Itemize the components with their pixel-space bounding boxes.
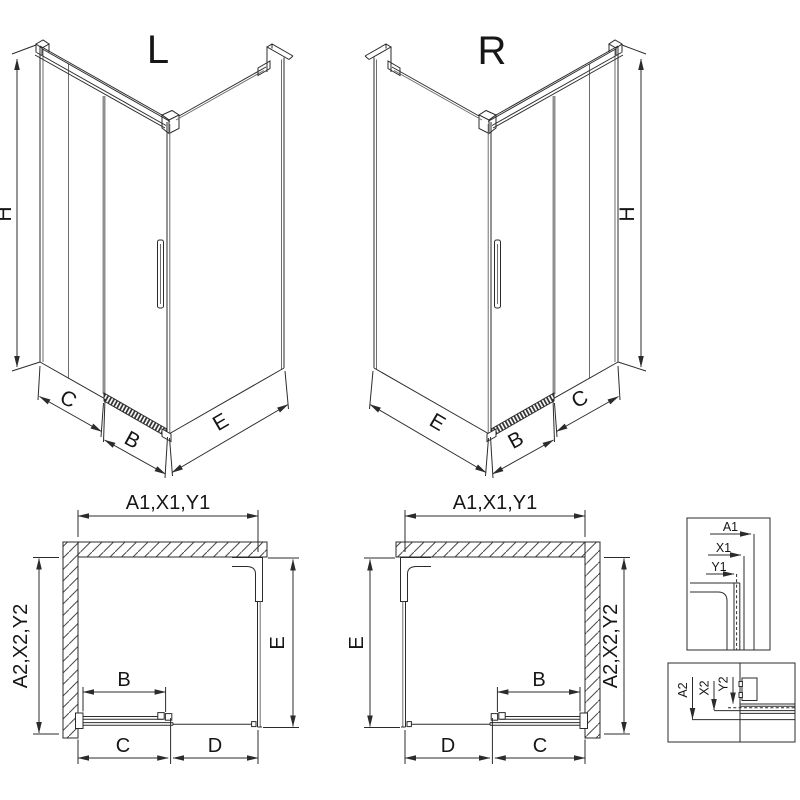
variant-label-left: L [147, 28, 169, 72]
wall-hatch-side-right-plan [585, 542, 600, 738]
plan-right-dim-a2x2y2: A2,X2,Y2 [600, 604, 622, 689]
dim-label-h-left: H [0, 206, 16, 221]
technical-drawing-page: L H C B E R H C B E A1,X1,Y1 A2,X2,Y2 E … [0, 0, 800, 800]
dim-label-e-right: E [425, 409, 449, 436]
detail-dim-a1: A1 [723, 520, 738, 534]
plan-right-dim-c: C [533, 735, 547, 757]
iso-view-left: L H C B E [0, 28, 293, 478]
wall-hatch-side-left-plan [63, 542, 78, 738]
detail-dim-x1: X1 [716, 541, 731, 555]
detail-dim-y2: Y2 [717, 676, 731, 691]
detail-dim-x2: X2 [698, 680, 712, 695]
plan-right-dim-a1x1y1: A1,X1,Y1 [453, 492, 538, 514]
iso-view-right: R H C B E [365, 29, 646, 478]
detail-dim-a2: A2 [676, 682, 690, 697]
plan-left-dim-c: C [116, 735, 130, 757]
wall-hatch-top-left-plan [63, 542, 267, 557]
dim-label-b-right: B [504, 427, 527, 454]
dim-label-h-right: H [616, 206, 639, 221]
dim-label-c-right: C [568, 386, 592, 413]
plan-view-left: A1,X1,Y1 A2,X2,Y2 E B C D [10, 492, 299, 764]
plan-left-dim-e: E [267, 636, 289, 649]
detail-wall-profile: A1 X1 Y1 [687, 518, 770, 650]
plan-right-dim-d: D [441, 735, 455, 757]
detail-dim-y1: Y1 [711, 560, 726, 574]
wall-hatch-top-right-plan [396, 542, 600, 557]
dim-label-e-left: E [209, 409, 233, 436]
variant-label-right: R [478, 29, 507, 73]
plan-right-dim-b: B [532, 669, 545, 691]
plan-view-right: A1,X1,Y1 A2,X2,Y2 E B D C [346, 492, 630, 764]
dim-label-b-left: B [120, 427, 143, 454]
plan-right-dim-e: E [346, 636, 368, 649]
plan-left-dim-a2x2y2: A2,X2,Y2 [10, 604, 32, 689]
plan-left-dim-d: D [208, 735, 222, 757]
detail-floor-rail: A2 X2 Y2 [668, 663, 795, 742]
dim-label-c-left: C [56, 386, 80, 413]
plan-left-dim-b: B [117, 669, 130, 691]
plan-left-dim-a1x1y1: A1,X1,Y1 [126, 492, 211, 514]
shower-enclosure-dimension-drawing: L H C B E R H C B E A1,X1,Y1 A2,X2,Y2 E … [0, 0, 800, 800]
